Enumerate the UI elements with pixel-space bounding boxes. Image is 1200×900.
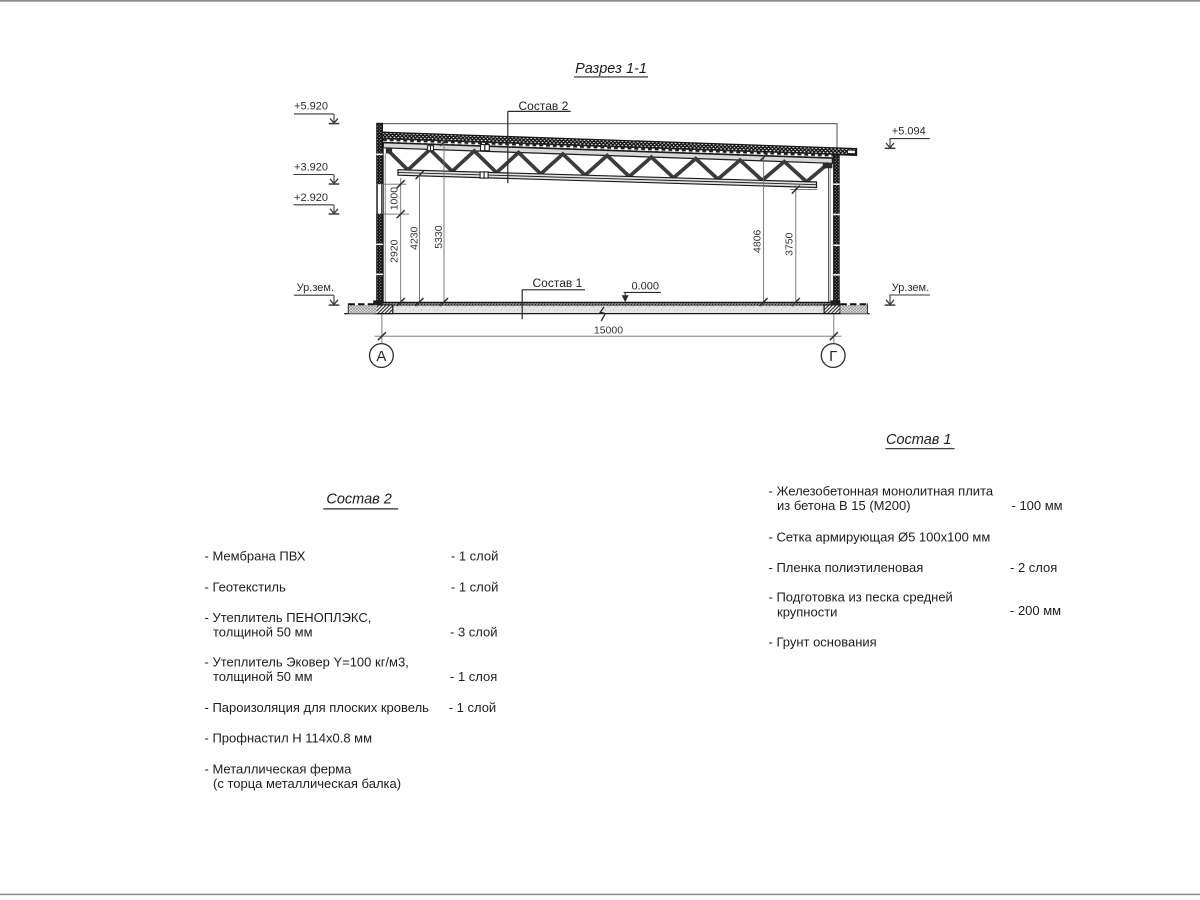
svg-text:Состав 2: Состав 2: [326, 492, 391, 508]
svg-text:- 200 мм: - 200 мм: [1010, 603, 1061, 618]
svg-text:- 1 слой: - 1 слой: [451, 549, 499, 564]
svg-text:3750: 3750: [784, 232, 796, 256]
svg-text:- 1 слой: - 1 слой: [449, 700, 497, 715]
svg-text:15000: 15000: [594, 324, 623, 336]
svg-text:+5.094: +5.094: [892, 125, 926, 137]
svg-text:- Металлическая ферма: - Металлическая ферма: [205, 761, 353, 776]
svg-text:толщиной 50 мм: толщиной 50 мм: [213, 625, 313, 640]
svg-text:- Утеплитель ПЕНОПЛЭКС,: - Утеплитель ПЕНОПЛЭКС,: [205, 610, 372, 625]
svg-text:толщиной 50 мм: толщиной 50 мм: [213, 669, 313, 684]
svg-text:0.000: 0.000: [632, 281, 660, 293]
svg-text:Состав 1: Состав 1: [533, 276, 583, 290]
svg-text:- Пленка полиэтиленовая: - Пленка полиэтиленовая: [769, 560, 924, 575]
svg-text:2920: 2920: [389, 239, 401, 263]
svg-text:(с торца металлическая балка): (с торца металлическая балка): [213, 776, 401, 791]
svg-text:- Железобетонная монолитная п: - Железобетонная монолитная плита: [769, 484, 994, 499]
svg-text:Ур.зем.: Ур.зем.: [297, 282, 334, 294]
svg-text:- 2 слоя: - 2 слоя: [1010, 560, 1057, 575]
svg-text:+5.920: +5.920: [294, 101, 328, 113]
svg-text:5330: 5330: [433, 225, 445, 249]
svg-text:- Сетка армирующая Ø5 100х100: - Сетка армирующая Ø5 100х100 мм: [769, 530, 991, 545]
svg-text:Состав 1: Состав 1: [886, 432, 951, 448]
svg-text:Г: Г: [829, 348, 837, 365]
svg-text:А: А: [376, 348, 386, 365]
svg-text:+2.920: +2.920: [294, 192, 328, 204]
svg-text:- Подготовка из песка средней: - Подготовка из песка средней: [769, 590, 953, 605]
svg-text:- Утеплитель Эковер Y=100 кг/м: - Утеплитель Эковер Y=100 кг/м3,: [205, 655, 409, 670]
svg-text:4230: 4230: [409, 226, 421, 250]
svg-text:Разрез 1-1: Разрез 1-1: [575, 61, 647, 77]
svg-text:1000: 1000: [389, 187, 401, 211]
svg-text:- 3 слой: - 3 слой: [450, 625, 498, 640]
svg-text:- Мембрана ПВХ: - Мембрана ПВХ: [205, 549, 306, 564]
svg-text:- Геотекстиль: - Геотекстиль: [205, 579, 286, 594]
svg-text:4806: 4806: [751, 229, 763, 253]
svg-text:- 1 слоя: - 1 слоя: [450, 669, 497, 684]
svg-text:- 100 мм: - 100 мм: [1012, 498, 1063, 513]
svg-text:крупности: крупности: [777, 604, 837, 619]
svg-text:+3.920: +3.920: [294, 161, 328, 173]
svg-text:- Грунт основания: - Грунт основания: [769, 635, 877, 650]
svg-text:- Профнастил Н 114х0.8 мм: - Профнастил Н 114х0.8 мм: [205, 731, 373, 746]
svg-text:из бетона В 15 (М200): из бетона В 15 (М200): [777, 498, 911, 513]
svg-text:Ур.зем.: Ур.зем.: [892, 282, 929, 294]
svg-text:- Пароизоляция для плоских кро: - Пароизоляция для плоских кровель: [205, 700, 430, 715]
svg-text:- 1 слой: - 1 слой: [451, 579, 499, 594]
